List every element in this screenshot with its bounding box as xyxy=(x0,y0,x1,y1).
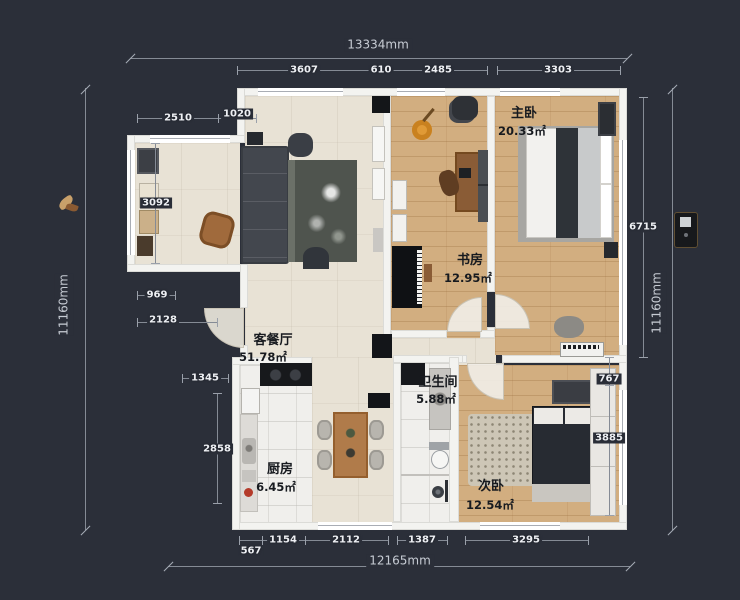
shoe-cabinet[interactable] xyxy=(372,334,392,358)
room-area-kitchen: 6.45㎡ xyxy=(256,481,296,495)
master-bed[interactable] xyxy=(526,128,612,238)
fridge[interactable] xyxy=(241,388,260,414)
kitchen-sink-counter[interactable] xyxy=(240,414,258,512)
window-study-top xyxy=(397,88,445,96)
shower-partition xyxy=(401,474,449,476)
entry-door-swing[interactable] xyxy=(204,308,244,348)
window-dining-bottom xyxy=(318,522,392,530)
dim-top-610: 610 xyxy=(369,65,394,76)
intercom-icon[interactable] xyxy=(674,212,698,248)
dining-chair-1[interactable] xyxy=(317,420,332,440)
window-second-bottom xyxy=(480,522,560,530)
dining-table[interactable] xyxy=(333,412,368,478)
dim-top-2485: 2485 xyxy=(422,65,454,76)
keyboard-keys xyxy=(563,345,599,349)
dim-left-1345: 1345 xyxy=(189,373,221,384)
dim-left-1020: 1020 xyxy=(221,109,253,120)
window-bay-top xyxy=(150,135,230,143)
wall-study-bottom-left xyxy=(391,330,447,338)
room-name-second: 次卧 xyxy=(478,479,504,495)
floor-plan-canvas: 客餐厅 51.78㎡ 书房 12.95㎡ 主卧 20.33㎡ 卫生间 5.88㎡… xyxy=(0,0,740,600)
dim-left-2858: 2858 xyxy=(201,444,233,455)
tv-cabinet-1[interactable] xyxy=(372,126,385,162)
cabinet-shelf-4[interactable] xyxy=(137,236,153,256)
master-pillow-2 xyxy=(600,184,612,238)
dining-chair-3[interactable] xyxy=(369,420,384,440)
dim-bottom-567: 567 xyxy=(239,546,264,557)
room-area-study: 12.95㎡ xyxy=(444,272,492,286)
master-nightstand[interactable] xyxy=(604,242,618,258)
sofa[interactable] xyxy=(241,146,289,264)
dim-total-right: 11160mm xyxy=(647,272,666,334)
dim-left-3092: 3092 xyxy=(140,198,172,209)
master-pillow-1 xyxy=(600,130,612,184)
dim-bottom-1387: 1387 xyxy=(406,535,438,546)
dim-total-top: 13334mm xyxy=(344,38,412,51)
dining-side-cabinet[interactable] xyxy=(368,393,390,408)
dim-right-3885: 3885 xyxy=(593,433,625,444)
intercom-button xyxy=(684,233,688,237)
room-area-bathroom: 5.88㎡ xyxy=(416,393,456,407)
lounge-chair[interactable] xyxy=(288,133,313,157)
dim-left-2128: 2128 xyxy=(147,315,179,326)
plant-decor-icon-2 xyxy=(65,202,79,213)
second-pillow-1 xyxy=(534,408,563,424)
kitchen-sink xyxy=(242,438,256,464)
window-living-top xyxy=(258,88,343,96)
study-wardrobe[interactable] xyxy=(478,150,488,222)
shower-pole xyxy=(445,480,448,502)
intercom-screen xyxy=(680,217,691,227)
bookshelf-1[interactable] xyxy=(392,180,407,210)
dim-left-969: 969 xyxy=(145,290,170,301)
wall-left-mid-upper xyxy=(240,264,248,308)
room-area-master: 20.33㎡ xyxy=(498,125,546,139)
dim-line-top-total xyxy=(130,58,627,59)
wall-bathroom-left xyxy=(393,363,401,522)
master-bed-blanket xyxy=(556,128,578,238)
wall-study-bottom-right xyxy=(480,330,495,338)
master-dresser[interactable] xyxy=(598,102,616,136)
dim-line-right-total xyxy=(672,88,673,530)
tv-cabinet-3[interactable] xyxy=(373,228,383,252)
wall-bay-bottom xyxy=(127,264,248,272)
shower-head[interactable] xyxy=(432,486,444,498)
toilet[interactable] xyxy=(431,450,449,469)
clothes-pile[interactable] xyxy=(554,316,584,338)
window-second-right xyxy=(619,390,627,505)
dim-top-3607: 3607 xyxy=(288,65,320,76)
dining-chair-4[interactable] xyxy=(369,450,384,470)
dim-bottom-1154: 1154 xyxy=(267,535,299,546)
room-name-living: 客餐厅 xyxy=(253,333,292,349)
living-room-rug[interactable] xyxy=(288,160,357,262)
room-name-bathroom: 卫生间 xyxy=(418,375,457,391)
second-bed-foot-cover xyxy=(532,484,596,502)
room-area-living: 51.78㎡ xyxy=(239,351,287,365)
shaft-column xyxy=(372,96,390,113)
wall-study-master-upper xyxy=(487,96,495,292)
guitar[interactable] xyxy=(412,120,432,140)
armchair[interactable] xyxy=(303,247,329,269)
kitchen-small-appliance xyxy=(242,470,256,482)
dim-right-767: 767 xyxy=(597,374,622,385)
toilet-tank xyxy=(429,442,449,450)
room-area-second: 12.54㎡ xyxy=(466,499,514,513)
desk-monitor xyxy=(459,168,471,178)
dim-top-3303: 3303 xyxy=(542,65,574,76)
dim-bottom-3295: 3295 xyxy=(510,535,542,546)
red-kettle xyxy=(244,488,253,497)
second-bed[interactable] xyxy=(532,406,596,502)
window-master-top xyxy=(500,88,560,96)
window-bay-left xyxy=(127,150,135,255)
tv-cabinet-2[interactable] xyxy=(372,168,385,200)
keyboard-instrument[interactable] xyxy=(560,342,604,357)
room-name-study: 书房 xyxy=(457,253,483,269)
dim-bottom-2112: 2112 xyxy=(330,535,362,546)
piano-bench[interactable] xyxy=(424,264,432,282)
dim-line-left-total xyxy=(85,88,86,530)
dining-chair-2[interactable] xyxy=(317,450,332,470)
room-name-master: 主卧 xyxy=(511,106,537,122)
window-master-right xyxy=(619,140,627,345)
side-table[interactable] xyxy=(247,132,263,145)
dim-right-6715: 6715 xyxy=(627,222,659,233)
second-wardrobe[interactable] xyxy=(552,380,592,404)
kitchen-stove-counter[interactable] xyxy=(260,363,312,386)
room-label-living: 客餐厅 xyxy=(253,333,292,349)
wall-bottom xyxy=(232,522,627,530)
coat-rack[interactable] xyxy=(452,96,478,120)
bookshelf-2[interactable] xyxy=(392,214,407,242)
master-bed-cover xyxy=(578,128,600,238)
dim-total-left: 11160mm xyxy=(54,274,73,336)
wall-kitchen-left xyxy=(232,357,240,530)
dim-left-2510: 2510 xyxy=(162,113,194,124)
cabinet-shelf-3[interactable] xyxy=(139,210,159,234)
dim-total-bottom: 12165mm xyxy=(366,554,434,567)
piano-keys xyxy=(417,250,422,304)
room-name-kitchen: 厨房 xyxy=(267,462,293,478)
